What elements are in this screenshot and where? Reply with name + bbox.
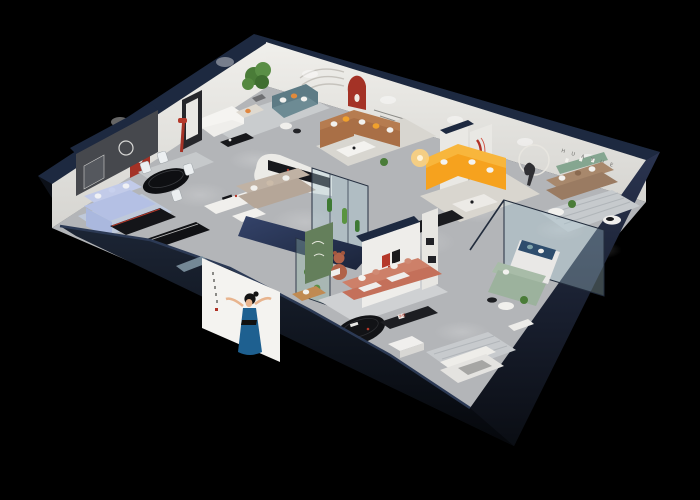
pillow [538,249,544,254]
pillow [343,116,350,121]
pillow [301,97,307,102]
pillow [503,269,509,274]
lit-table-lamp [417,155,423,161]
pillow [109,187,116,192]
pillow [358,275,366,281]
table-decor [606,217,614,221]
round-side-table [280,123,292,130]
pillow [303,290,309,295]
green-art-panel [305,222,333,284]
pillow [280,97,287,102]
round-stool [293,129,301,134]
pillow [266,180,273,186]
floor-plant [380,158,388,166]
table-decor [229,139,232,142]
pillow [245,109,251,113]
table-vase [353,147,356,150]
pillow [575,170,581,175]
woman-face [246,299,253,307]
round-table [498,302,514,310]
pillow [486,167,493,173]
pillow [390,263,398,269]
pillow [250,185,257,191]
pillow [95,193,102,198]
round-table-dark [487,297,497,302]
pillow [123,183,130,188]
showroom-render: H U A Y U E [0,0,700,500]
pillow [331,121,338,126]
woman-hair-bun [253,291,258,296]
pillow [282,175,289,181]
table-decor [470,200,473,203]
table-red-decor [367,328,370,331]
pillow [440,159,447,165]
poster-red-seal [215,308,218,311]
niche-figurine [354,94,359,102]
wall-shelf-items [428,256,436,263]
pillow [387,127,394,132]
pillow [291,94,297,99]
pillow [359,119,366,124]
pillow [559,175,566,180]
teal-pillow [527,245,533,250]
doorway-inner-panel [186,98,198,140]
wall-glow [216,57,234,67]
pillow [468,159,475,165]
floor-plant [520,296,528,304]
isometric-floorplan-svg: H U A Y U E [0,0,700,500]
pillow [372,269,379,275]
red-arch-niche-center [348,76,366,110]
floor-plant [568,200,576,208]
pillow [589,166,596,171]
pillow [373,123,380,128]
wall-shelf-items [426,238,434,245]
dress-waist-band [241,320,257,325]
pillow [404,258,411,264]
